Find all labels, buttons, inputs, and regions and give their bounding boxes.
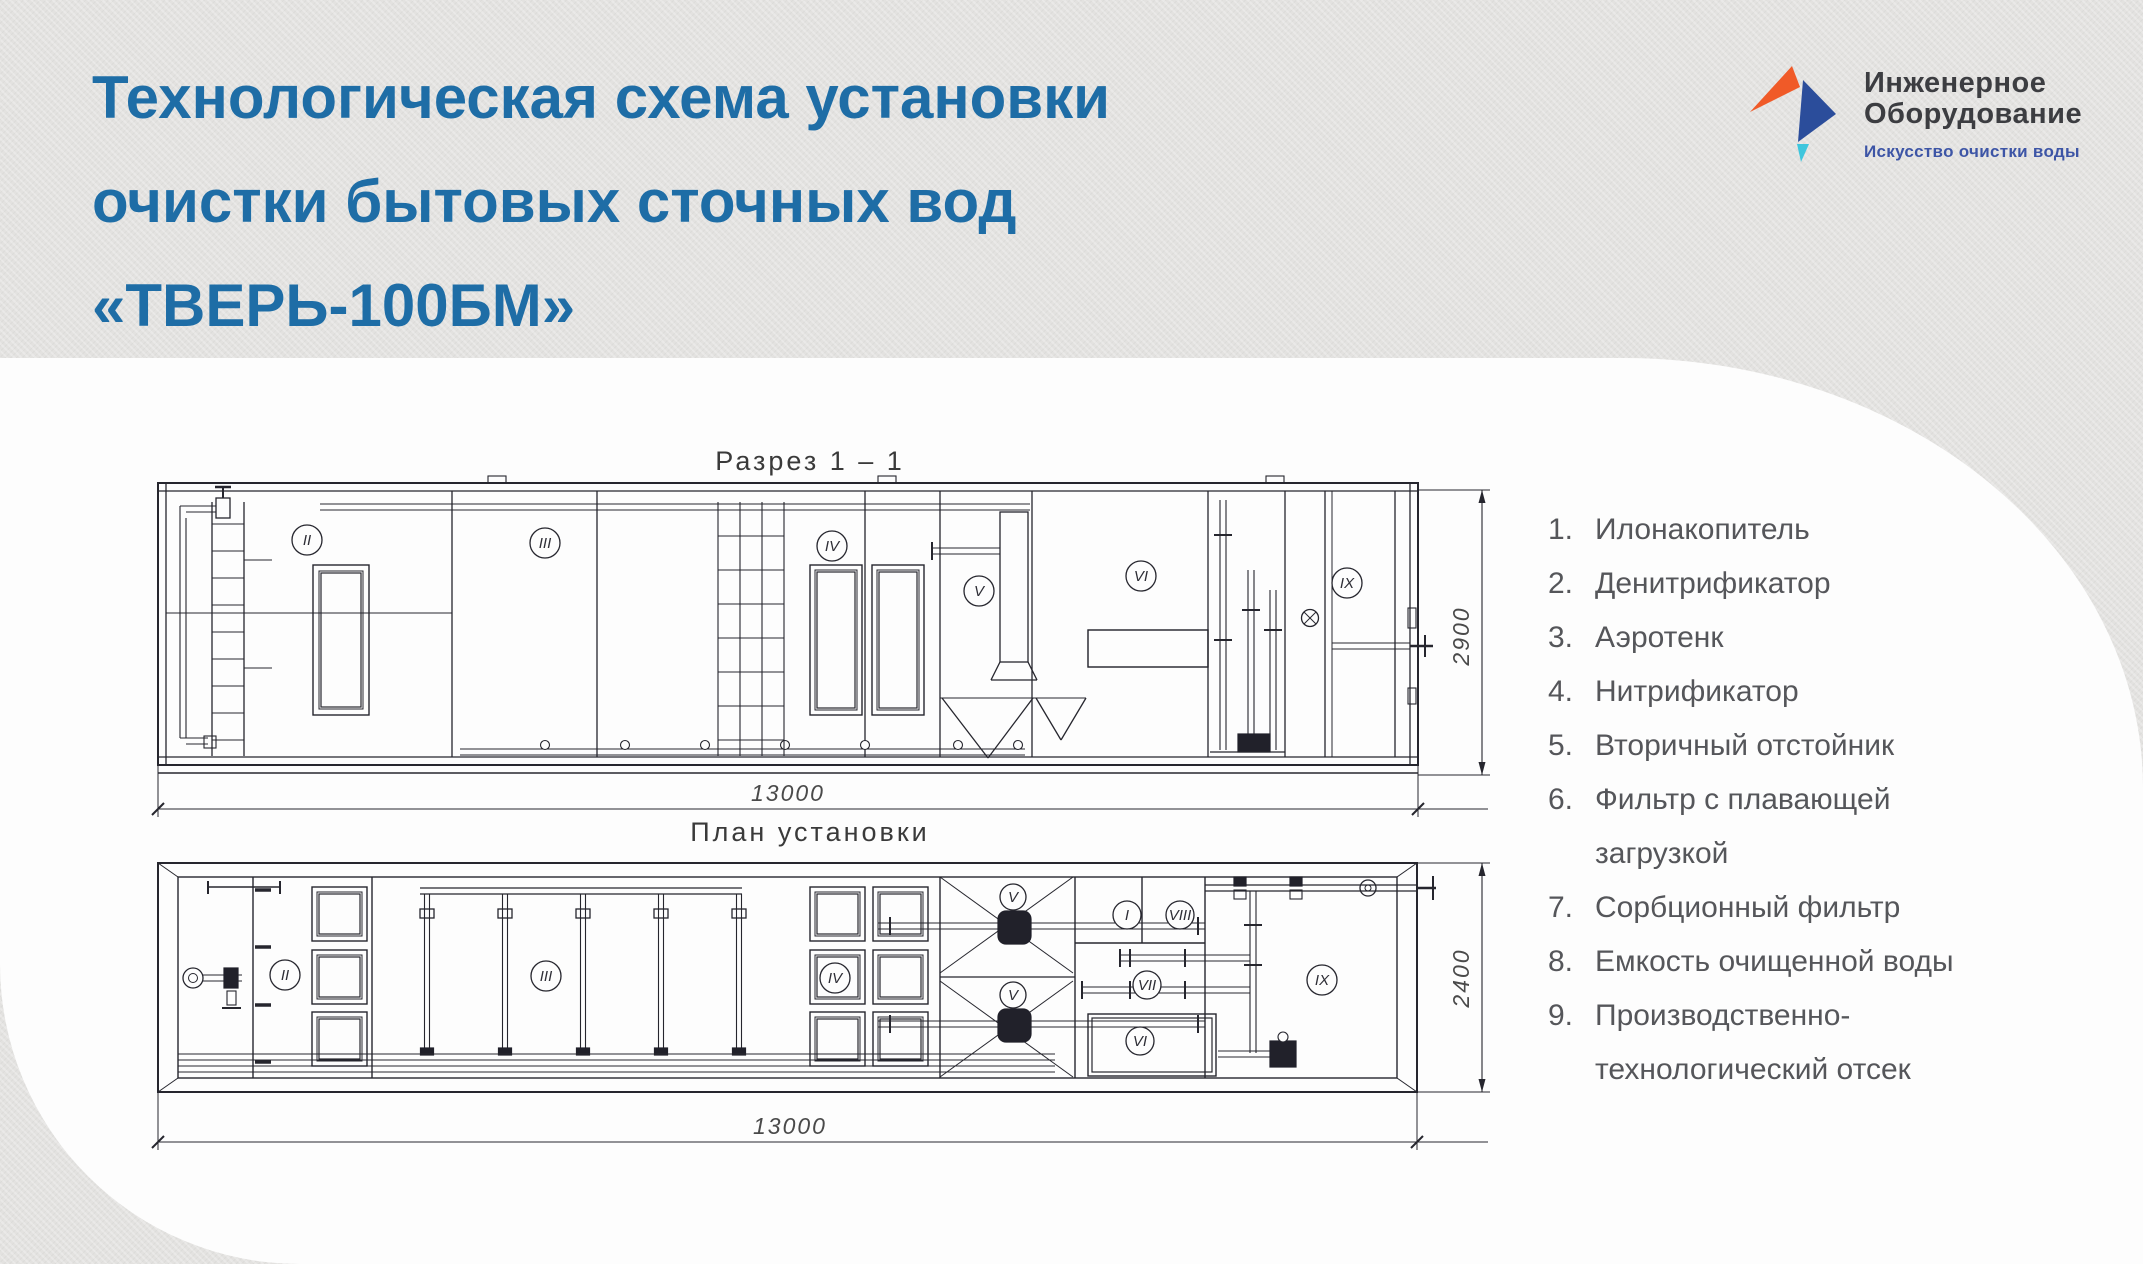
section-compartment-label-III: III [530, 528, 560, 558]
legend-item-number: 6. [1548, 773, 1595, 827]
section-tank-shell [158, 476, 1418, 773]
plan-compartment-label-V-lower: V [1000, 982, 1026, 1008]
logo-mark-icon [1748, 62, 1840, 164]
plan-compartment-label-II: II [270, 960, 300, 990]
plan-drawing: План установки [120, 815, 1540, 1160]
svg-text:IX: IX [1315, 972, 1330, 989]
section-title: Разрез 1 – 1 [715, 446, 905, 476]
legend-item-number: 8. [1548, 935, 1595, 989]
plan-compartment-label-IV: IV [820, 963, 850, 993]
svg-text:I: I [1125, 907, 1129, 924]
section-compartment-label-V: V [964, 576, 994, 606]
logo-triangle-blue [1798, 80, 1836, 142]
legend-item: 9.Производственно-технологический отсек [1548, 989, 2018, 1097]
logo-triangle-orange [1750, 66, 1800, 112]
section-compartment-label-II: II [292, 525, 322, 555]
svg-text:III: III [540, 968, 553, 985]
logo-tagline: Искусство очистки воды [1864, 142, 2082, 162]
legend-item-number: 5. [1548, 719, 1595, 773]
legend-item: 8.Емкость очищенной воды [1548, 935, 2018, 989]
legend-item-number: 4. [1548, 665, 1595, 719]
svg-text:III: III [539, 535, 552, 552]
legend-item-text: Фильтр с плавающей загрузкой [1595, 773, 1995, 881]
legend-item-number: 7. [1548, 881, 1595, 935]
section-compartment-label-IX: IX [1332, 568, 1362, 598]
section-length-dim-text: 13000 [751, 780, 825, 806]
logo-triangle-cyan [1797, 144, 1809, 162]
plan-compartment-label-VI: VI [1126, 1027, 1154, 1055]
section-height-dimension: 2900 [1418, 490, 1490, 775]
page-title: Технологическая схема установки очистки … [92, 46, 1492, 358]
svg-text:VI: VI [1134, 568, 1148, 585]
legend-item: 1.Илонакопитель [1548, 503, 2018, 557]
plan-compartment-label-V-upper: V [1000, 884, 1026, 910]
plan-denitrifier-blocks [312, 877, 372, 1078]
plan-width-dim-text: 2400 [1448, 948, 1474, 1008]
legend-item: 6.Фильтр с плавающей загрузкой [1548, 773, 2018, 881]
section-clarifier-equipment [932, 512, 1086, 758]
section-pump-bay-piping [1210, 500, 1285, 752]
logo-name-line-2: Оборудование [1864, 99, 2082, 130]
page-title-line-3: «ТВЕРЬ-100БМ» [92, 254, 1492, 358]
legend-item: 7.Сорбционный фильтр [1548, 881, 2018, 935]
svg-text:VI: VI [1133, 1033, 1147, 1050]
plan-title: План установки [690, 817, 930, 847]
plan-length-dimension: 13000 [152, 1092, 1488, 1150]
plan-compartment-label-III: III [531, 961, 561, 991]
legend-item-number: 1. [1548, 503, 1595, 557]
legend-item-number: 9. [1548, 989, 1595, 1043]
page-title-line-2: очистки бытовых сточных вод [92, 150, 1492, 254]
legend-item-text: Производственно-технологический отсек [1595, 989, 1995, 1097]
plan-inlet-assembly [183, 877, 280, 1078]
legend-list: 1.Илонакопитель2.Денитрификатор3.Аэротен… [1548, 503, 2018, 1097]
section-compartment-label-IV: IV [817, 531, 847, 561]
svg-text:VIII: VIII [1169, 907, 1192, 924]
plan-compartment-label-VIII: VIII [1166, 901, 1194, 929]
logo-name-line-1: Инженерное [1864, 68, 2082, 99]
section-filter-block [1088, 630, 1208, 667]
legend-item-text: Денитрификатор [1595, 557, 1995, 611]
legend-item-text: Вторичный отстойник [1595, 719, 1995, 773]
legend-item: 2.Денитрификатор [1548, 557, 2018, 611]
legend-item-text: Нитрификатор [1595, 665, 1995, 719]
plan-tank-shell [158, 863, 1417, 1092]
legend-item-number: 3. [1548, 611, 1595, 665]
legend-item: 3.Аэротенк [1548, 611, 2018, 665]
legend-item: 4.Нитрификатор [1548, 665, 2018, 719]
plan-compartment-label-IX: IX [1307, 965, 1337, 995]
svg-text:VII: VII [1138, 977, 1156, 994]
section-outlet-chamber [1302, 608, 1434, 704]
plan-compartment-label-I: I [1113, 901, 1141, 929]
section-drawing: Разрез 1 – 1 [120, 440, 1540, 830]
section-height-dim-text: 2900 [1448, 606, 1474, 666]
svg-text:II: II [303, 532, 311, 549]
page-title-line-1: Технологическая схема установки [92, 46, 1492, 150]
legend-item-text: Емкость очищенной воды [1595, 935, 1995, 989]
legend-item-text: Илонакопитель [1595, 503, 1995, 557]
legend-item-text: Аэротенк [1595, 611, 1995, 665]
plan-width-dimension: 2400 [1417, 863, 1490, 1092]
svg-text:IV: IV [825, 538, 841, 555]
plan-compartment-label-VII: VII [1133, 971, 1161, 999]
plan-length-dim-text: 13000 [753, 1113, 827, 1139]
svg-text:II: II [281, 967, 289, 984]
legend-item: 5.Вторичный отстойник [1548, 719, 2018, 773]
svg-text:IX: IX [1340, 575, 1355, 592]
section-compartment-label-VI: VI [1126, 561, 1156, 591]
legend-item-text: Сорбционный фильтр [1595, 881, 1995, 935]
svg-text:IV: IV [828, 970, 844, 987]
legend-item-number: 2. [1548, 557, 1595, 611]
